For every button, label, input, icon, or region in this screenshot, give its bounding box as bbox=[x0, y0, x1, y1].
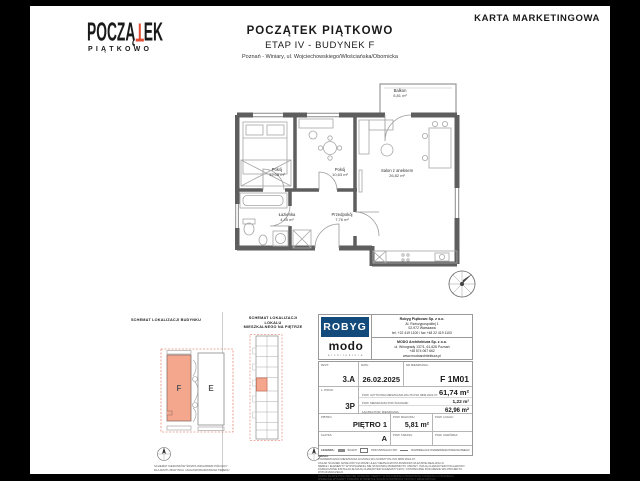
marketing-card-page: KARTA MARKETINGOWA POCZĄTEK PIĄTKOWO POC… bbox=[30, 6, 610, 474]
cell-pokoi: L. POKOI: 3P bbox=[319, 387, 359, 413]
room-area: 26,82 m² bbox=[365, 173, 429, 178]
room-label-pokoj-2: Pokój 10,63 m² bbox=[308, 167, 372, 177]
cell-value: 5,81 m² bbox=[405, 422, 429, 429]
building-f-label: F bbox=[177, 384, 182, 393]
cell-loggia: POW. LOGGII: bbox=[433, 414, 472, 431]
architect-contact: MODO Architektura Sp. z o.o. ul. Winogra… bbox=[371, 338, 472, 359]
cell-ogrodek: POW. OGRÓDKA: bbox=[433, 432, 472, 445]
modo-logo: modo architektura bbox=[323, 340, 369, 357]
cell-pietro: PIĘTRO: PIĘTRO 1 bbox=[319, 414, 391, 431]
room-area: 10,63 m² bbox=[308, 172, 372, 177]
area-value: 61,74 m² bbox=[439, 388, 469, 397]
remarks-block: UWAGI: POWIERZCHNIA MIESZKANIA LICZONA W… bbox=[318, 455, 473, 481]
room-area: 5,81 m² bbox=[368, 93, 432, 98]
manifold-swatch-icon bbox=[400, 450, 408, 451]
modo-subtitle: architektura bbox=[323, 353, 369, 357]
apartment-details-table: RZUT: 3.A DATA: 26.02.2025 NR MIESZKANIA… bbox=[318, 361, 473, 456]
floor-location-schematic bbox=[244, 334, 288, 442]
developer-contact: Robyg Piątkowo Sp. z o.o. Al. Rzeczyposp… bbox=[371, 315, 472, 338]
wall-swatch-icon bbox=[338, 449, 345, 452]
cell-nr-mieszkania: NR MIESZKANIA: F 1M01 bbox=[404, 362, 472, 386]
table-row: RZUT: 3.A DATA: 26.02.2025 NR MIESZKANIA… bbox=[319, 362, 472, 387]
cell-balkon: POW. BALKONU: 5,81 m² bbox=[391, 414, 433, 431]
compass-note-line: DLA RZUTU BUDYNKU I ZAGOSPODAROWANIA TER… bbox=[154, 469, 266, 473]
area-row: ŁĄCZNA POW. MIESZKANIA: 62,96 m² bbox=[359, 406, 472, 414]
cell-label: RZUT: bbox=[321, 363, 329, 367]
area-row: POW. MIESZKANIA POD ŚCIANAMI: 1,22 m² bbox=[359, 398, 472, 406]
cell-label: L. POKOI: bbox=[321, 388, 334, 392]
area-label: POW. UŻYTKOWA MIESZKANIA WG PN-ISO 9836:… bbox=[362, 392, 438, 397]
cell-label: DATA: bbox=[361, 363, 369, 367]
companies-block: ROBYG modo architektura Robyg Piątkowo S… bbox=[318, 314, 473, 360]
area-label: POW. MIESZKANIA POD ŚCIANAMI: bbox=[362, 400, 409, 405]
room-label-przedpokoj: Przedpokój 7,76 m² bbox=[310, 212, 374, 222]
developer-phone: tel. +22 419 1100 / fax +48 22 419 1103 bbox=[372, 331, 472, 336]
legend-item: ROZDZIELACZ OGRZEWANIA PODŁOGOWEGO bbox=[411, 449, 469, 452]
page-title: POCZĄTEK PIĄTKOWO bbox=[30, 25, 610, 37]
room-label-balkon: Balkon 5,81 m² bbox=[368, 88, 432, 98]
cell-value: F 1M01 bbox=[440, 374, 469, 384]
project-address: Poznań - Winiary, ul. Wojciechowskiego/W… bbox=[30, 54, 610, 60]
cell-value: PIĘTRO 1 bbox=[353, 420, 387, 429]
page-subtitle: ETAP IV - BUDYNEK F bbox=[30, 40, 610, 51]
table-row: L. POKOI: 3P POW. UŻYTKOWA MIESZKANIA WG… bbox=[319, 387, 472, 414]
compass-icon bbox=[444, 266, 480, 302]
legend: LEGENDA: ŚCIANY PION INSTALACYJNY ROZDZI… bbox=[319, 446, 472, 455]
building-schematic-label: SCHEMAT LOKALIZACJI BUDYNKU bbox=[106, 318, 226, 323]
room-label-pokoj-1: Pokój 12,08 m² bbox=[245, 167, 309, 177]
robyg-logo: ROBYG bbox=[321, 317, 369, 337]
cell-value: A bbox=[382, 434, 387, 443]
cell-label: POW. OGRÓDKA: bbox=[435, 433, 458, 437]
cell-label: KLATKA: bbox=[321, 433, 332, 437]
cell-label: NR MIESZKANIA: bbox=[406, 363, 429, 367]
floor-schematic-label-line: SCHEMAT LOKALIZACJI LOKALU bbox=[240, 316, 306, 325]
floor-schematic-label-line: MIESZKALNEGO NA PIĘTRZE bbox=[240, 325, 306, 330]
cell-label: PIĘTRO: bbox=[321, 415, 332, 419]
cell-label: POW. BALKONU: bbox=[393, 415, 415, 419]
cell-value: 3.A bbox=[343, 375, 355, 384]
floor-schematic-label: SCHEMAT LOKALIZACJI LOKALU MIESZKALNEGO … bbox=[240, 316, 306, 330]
legend-label: LEGENDA: bbox=[321, 449, 335, 452]
north-arrow-icon bbox=[156, 446, 172, 462]
room-label-salon: Salon z aneksem 26,82 m² bbox=[365, 168, 429, 178]
cell-powierzchnie: POW. UŻYTKOWA MIESZKANIA WG PN-ISO 9836:… bbox=[359, 387, 472, 413]
room-area: 7,76 m² bbox=[310, 217, 374, 222]
cell-klatka: KLATKA: A bbox=[319, 432, 391, 445]
legend-item: ŚCIANY bbox=[348, 449, 358, 452]
legend-item: PION INSTALACYJNY bbox=[371, 449, 397, 452]
architect-website: www.modoarchitektura.pl bbox=[372, 354, 472, 359]
building-e-label: E bbox=[208, 384, 214, 393]
document-type-label: KARTA MARKETINGOWA bbox=[474, 13, 600, 24]
floor-plan-drawing bbox=[235, 78, 465, 276]
area-row: POW. UŻYTKOWA MIESZKANIA WG PN-ISO 9836:… bbox=[359, 387, 472, 398]
compass-note: SCHEMAT KIERUNKÓW ŚWIATA WZGLĘDEM PÓŁNOC… bbox=[154, 465, 266, 472]
table-row: KLATKA: A POW. TARASU: POW. OGRÓDKA: bbox=[319, 432, 472, 446]
cell-taras: POW. TARASU: bbox=[391, 432, 433, 445]
cell-rzut: RZUT: 3.A bbox=[319, 362, 359, 386]
cell-label: POW. LOGGII: bbox=[435, 415, 454, 419]
shaft-swatch-icon bbox=[360, 448, 368, 453]
modo-wordmark: modo bbox=[323, 340, 369, 352]
area-value: 1,22 m² bbox=[452, 400, 469, 405]
building-location-schematic: F E bbox=[160, 348, 234, 434]
cell-value: 26.02.2025 bbox=[362, 375, 400, 384]
cell-value: 3P bbox=[345, 402, 355, 411]
table-row: PIĘTRO: PIĘTRO 1 POW. BALKONU: 5,81 m² P… bbox=[319, 414, 472, 432]
cell-data: DATA: 26.02.2025 bbox=[359, 362, 404, 386]
table-row-legend: LEGENDA: ŚCIANY PION INSTALACYJNY ROZDZI… bbox=[319, 446, 472, 455]
room-area: 12,08 m² bbox=[245, 172, 309, 177]
cell-label: POW. TARASU: bbox=[393, 433, 413, 437]
